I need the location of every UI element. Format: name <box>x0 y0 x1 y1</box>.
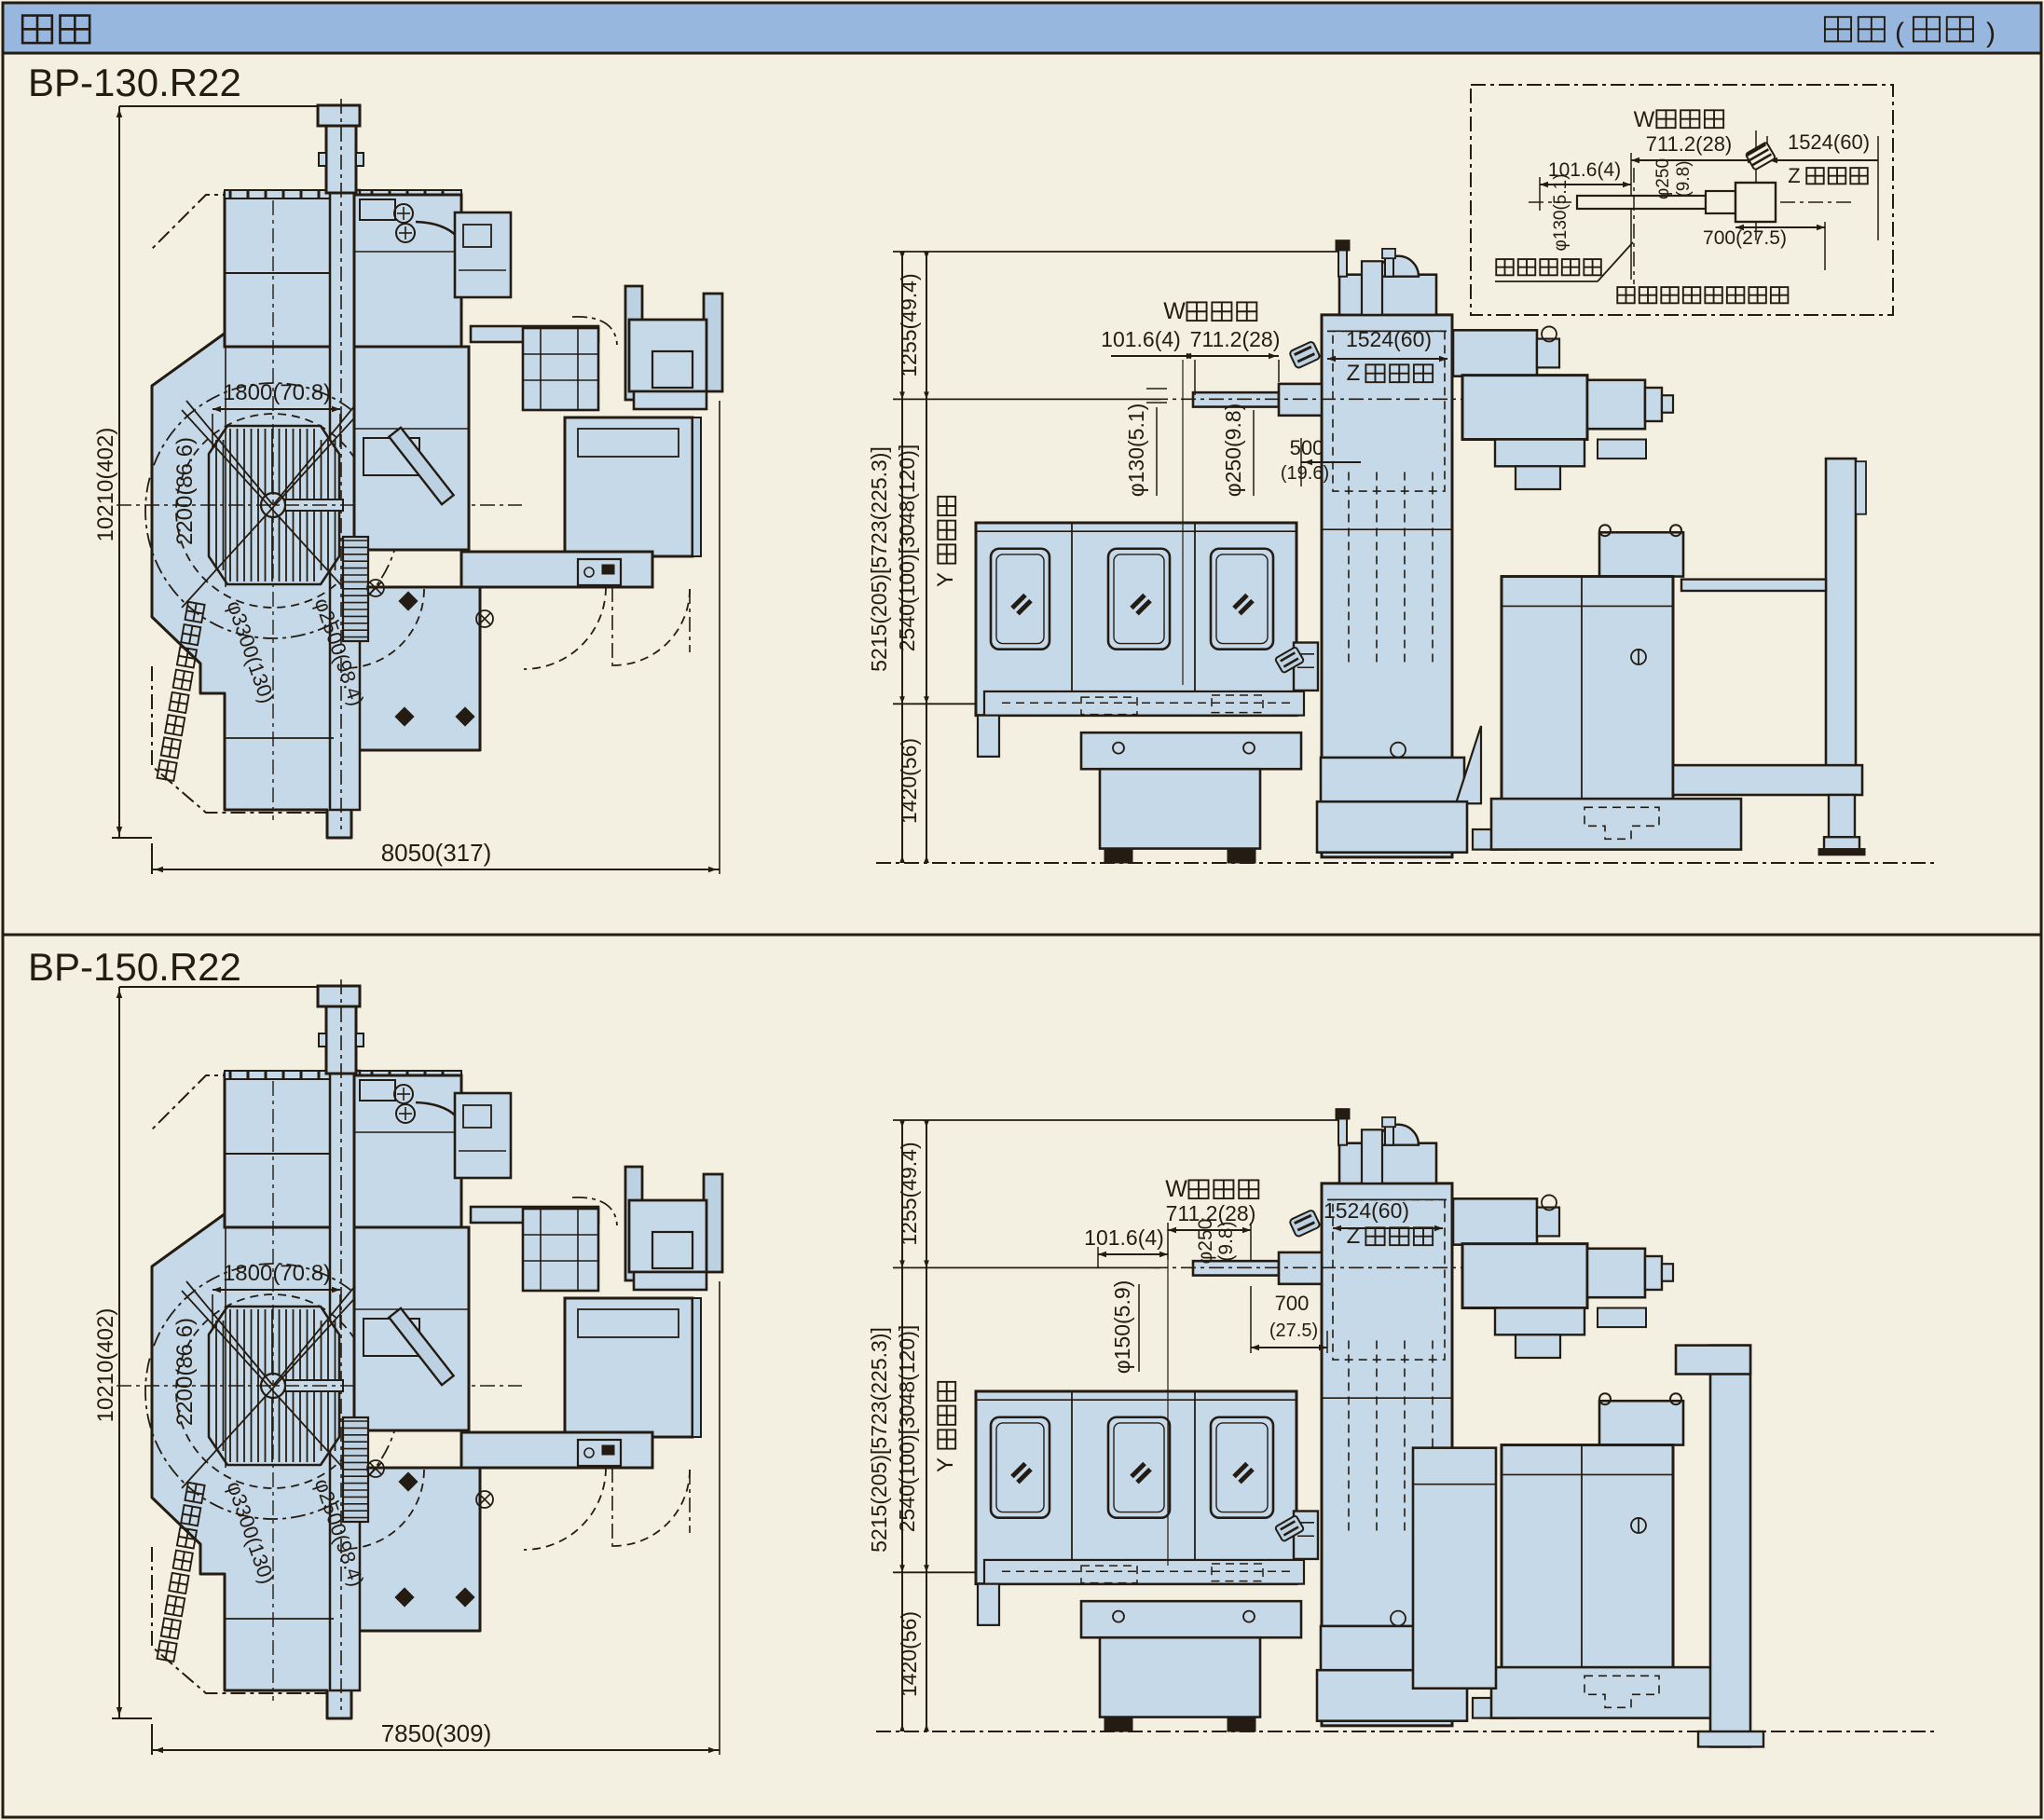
svg-text:(9.8): (9.8) <box>1215 1221 1237 1261</box>
svg-text:2540(100)[3048(120)]: 2540(100)[3048(120)] <box>895 445 919 652</box>
svg-text:101.6(4): 101.6(4) <box>1084 1225 1164 1250</box>
svg-text:Z: Z <box>1788 164 1800 187</box>
svg-text:1524(60): 1524(60) <box>1788 130 1870 154</box>
svg-text:W: W <box>1634 107 1655 132</box>
svg-text:1800(70.8): 1800(70.8) <box>223 1261 331 1286</box>
svg-text:1255(49.4): 1255(49.4) <box>897 273 921 376</box>
svg-text:2200(86.6): 2200(86.6) <box>172 437 198 545</box>
svg-text:(19.6): (19.6) <box>1281 463 1329 484</box>
svg-text:Z: Z <box>1347 1224 1361 1249</box>
svg-text:101.6(4): 101.6(4) <box>1101 327 1181 351</box>
svg-text:700: 700 <box>1275 1292 1310 1315</box>
svg-text:700(27.5): 700(27.5) <box>1703 227 1787 249</box>
svg-text:φ130(5.1): φ130(5.1) <box>1124 404 1148 498</box>
svg-text:φ250(9.8): φ250(9.8) <box>1221 404 1245 498</box>
svg-text:1800(70.8): 1800(70.8) <box>223 380 331 405</box>
svg-text:5215(205)[5723(225.3)]: 5215(205)[5723(225.3)] <box>867 446 891 672</box>
svg-text:φ150(5.9): φ150(5.9) <box>1110 1280 1134 1375</box>
svg-text:φ250: φ250 <box>1653 158 1673 199</box>
svg-text:Y: Y <box>933 572 958 587</box>
svg-text:φ250: φ250 <box>1195 1219 1216 1265</box>
svg-text:1420(56): 1420(56) <box>897 1611 921 1697</box>
svg-text:1524(60): 1524(60) <box>1346 327 1432 351</box>
svg-text:1524(60): 1524(60) <box>1324 1198 1409 1223</box>
svg-text:10210(402): 10210(402) <box>93 1308 118 1423</box>
svg-text:8050(317): 8050(317) <box>381 839 492 867</box>
svg-text:): ) <box>1986 18 1996 48</box>
svg-text:φ130(5.1): φ130(5.1) <box>1551 173 1571 251</box>
svg-text:500: 500 <box>1290 436 1324 459</box>
svg-text:2540(100)[3048(120)]: 2540(100)[3048(120)] <box>895 1325 919 1533</box>
svg-text:10210(402): 10210(402) <box>93 428 118 542</box>
svg-text:W: W <box>1165 1176 1187 1202</box>
svg-text:W: W <box>1163 298 1186 324</box>
svg-text:711.2(28): 711.2(28) <box>1646 132 1733 156</box>
svg-text:(: ( <box>1895 18 1904 48</box>
svg-text:(27.5): (27.5) <box>1269 1321 1318 1341</box>
svg-text:1255(49.4): 1255(49.4) <box>897 1142 921 1245</box>
svg-text:(9.8): (9.8) <box>1674 160 1694 197</box>
svg-text:2200(86.6): 2200(86.6) <box>172 1318 198 1426</box>
svg-text:Y: Y <box>933 1457 958 1472</box>
svg-text:Z: Z <box>1347 361 1361 386</box>
svg-text:BP-150.R22: BP-150.R22 <box>28 945 241 989</box>
svg-text:BP-130.R22: BP-130.R22 <box>28 61 241 104</box>
svg-text:1420(56): 1420(56) <box>897 738 921 824</box>
svg-text:5215(205)[5723(225.3)]: 5215(205)[5723(225.3)] <box>867 1327 891 1553</box>
svg-text:711.2(28): 711.2(28) <box>1190 327 1281 351</box>
svg-text:7850(309): 7850(309) <box>381 1719 492 1747</box>
